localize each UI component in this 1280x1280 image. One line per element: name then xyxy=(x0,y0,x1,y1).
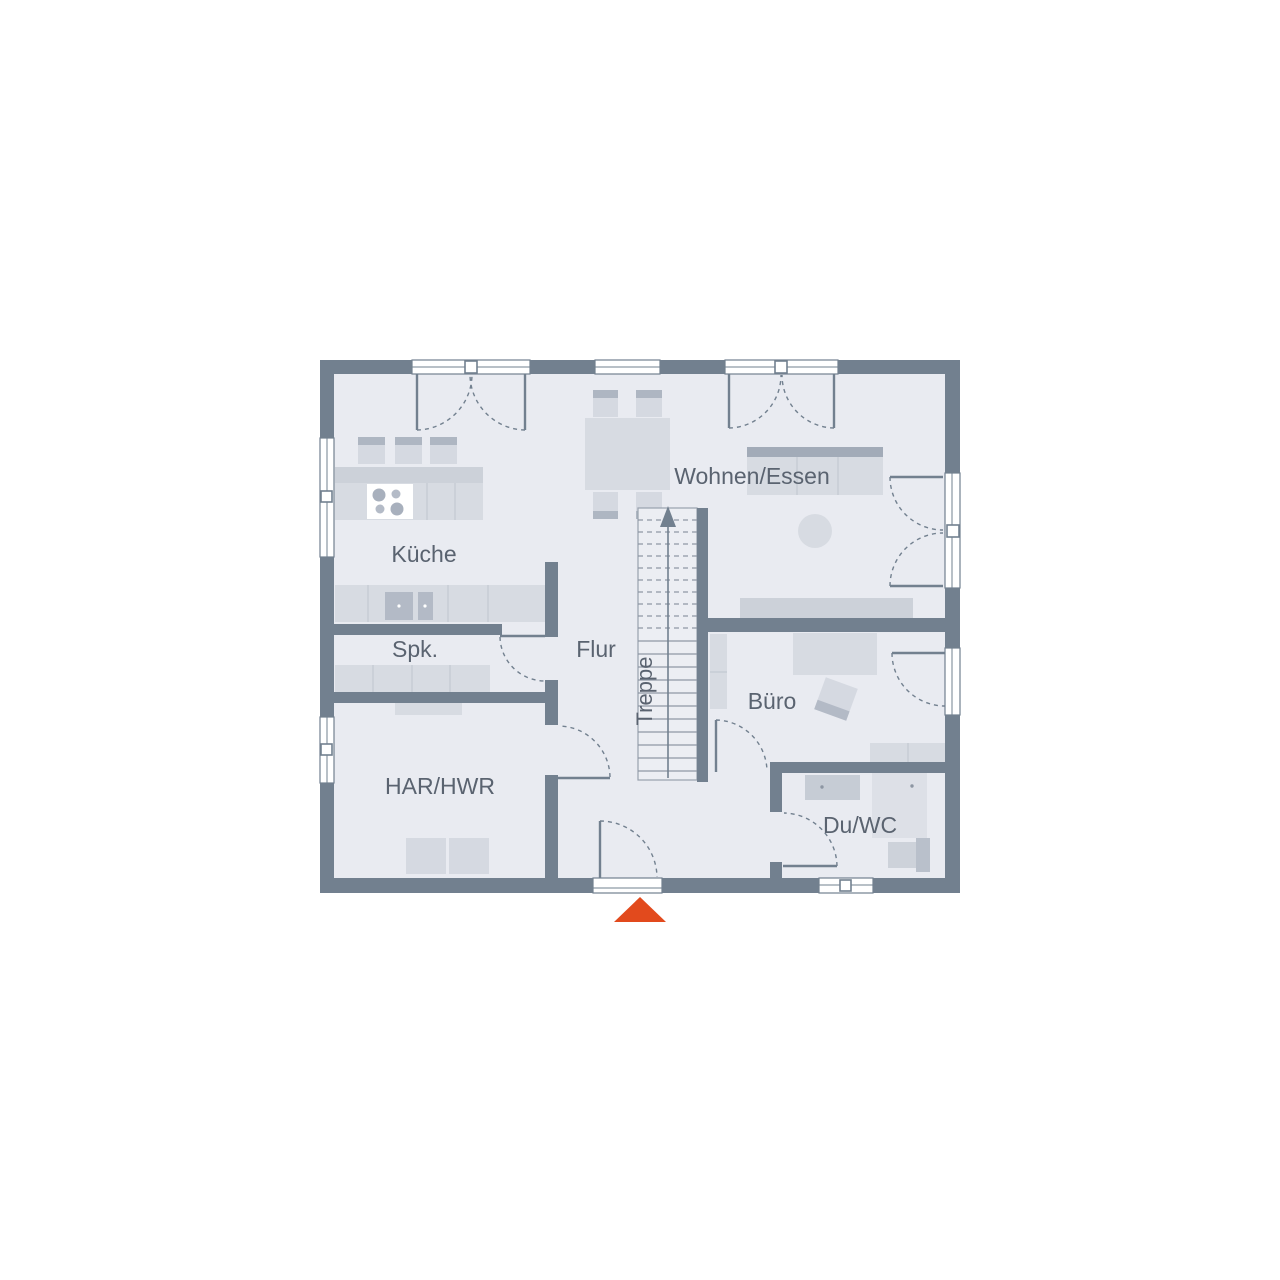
kitchen-counter xyxy=(335,585,545,622)
toilet-tank xyxy=(916,838,930,872)
wall-left xyxy=(320,783,334,893)
french-door-frame-living-top xyxy=(725,360,838,374)
window-handle-icon xyxy=(775,361,787,373)
burner xyxy=(392,490,401,499)
wall-right xyxy=(945,360,960,473)
room-label-living-dining: Wohnen/Essen xyxy=(674,463,830,489)
wall-bath-left-lower xyxy=(770,862,782,878)
entrance-triangle-icon xyxy=(614,897,666,922)
window-handle-icon xyxy=(840,880,851,891)
sideboard xyxy=(740,598,913,618)
window-left-kitchen xyxy=(320,438,334,557)
burner xyxy=(376,505,385,514)
french-door-frame-kitchen xyxy=(412,360,530,374)
room-label-hall: Flur xyxy=(576,636,616,662)
wall-pantry-utility xyxy=(334,692,547,703)
window-left-utility xyxy=(320,717,334,783)
wall-hall-jamb xyxy=(545,680,558,725)
dining-chair xyxy=(593,390,618,417)
burner xyxy=(373,489,386,502)
wall-right xyxy=(945,588,960,648)
kitchen-island xyxy=(335,467,483,520)
entrance-door-frame xyxy=(593,878,662,893)
window-handle-icon xyxy=(465,361,477,373)
window-top-dining xyxy=(595,360,660,374)
floorplan-page: Küche Spk. Flur Treppe HAR/HWR Wohnen/Es… xyxy=(0,0,1280,1280)
wall-kitchen-cap xyxy=(545,562,558,637)
room-label-office: Büro xyxy=(748,688,797,714)
washer xyxy=(406,838,446,874)
wall-left xyxy=(320,557,334,717)
wall-office-bath xyxy=(770,762,945,773)
staircase xyxy=(638,506,697,780)
wall-right xyxy=(945,715,960,893)
dryer xyxy=(449,838,489,874)
bar-stool xyxy=(430,437,457,464)
wall-bottom xyxy=(873,878,960,893)
room-label-pantry: Spk. xyxy=(392,636,438,662)
wall-top xyxy=(838,360,960,374)
wall-left xyxy=(320,360,334,438)
window-handle-icon xyxy=(947,525,959,537)
bar-stool xyxy=(358,437,385,464)
dining-table xyxy=(585,418,670,490)
wall-bottom xyxy=(320,878,593,893)
wall-bottom xyxy=(662,878,819,893)
window-handle-icon xyxy=(321,744,332,755)
wall-top xyxy=(660,360,725,374)
cooktop xyxy=(367,484,413,519)
wall-living-office xyxy=(708,618,945,632)
wall-stair xyxy=(697,508,708,782)
floorplan-drawing: Küche Spk. Flur Treppe HAR/HWR Wohnen/Es… xyxy=(0,0,1280,1280)
room-label-bath: Du/WC xyxy=(823,812,897,838)
pantry-furniture xyxy=(335,665,490,692)
wall-top xyxy=(530,360,595,374)
french-door-frame-office-right xyxy=(945,648,960,715)
french-door-frame-living-right xyxy=(945,473,960,588)
dining-chair xyxy=(593,492,618,519)
room-label-utility: HAR/HWR xyxy=(385,773,495,799)
wall-bath-left-upper xyxy=(770,762,782,812)
wall-utility-hall xyxy=(545,775,558,878)
window-handle-icon xyxy=(321,491,332,502)
utility-shelf xyxy=(395,703,462,715)
bar-stool xyxy=(395,437,422,464)
office-desk xyxy=(793,633,877,675)
burner xyxy=(391,503,404,516)
window-bottom-bath xyxy=(819,878,873,893)
washbasin xyxy=(805,775,860,800)
wall-kitchen-pantry xyxy=(334,624,502,635)
dining-chair xyxy=(636,390,662,417)
room-label-kitchen: Küche xyxy=(391,541,456,567)
coffee-table xyxy=(798,514,832,548)
room-label-stairs: Treppe xyxy=(632,657,657,726)
toilet xyxy=(888,842,916,868)
